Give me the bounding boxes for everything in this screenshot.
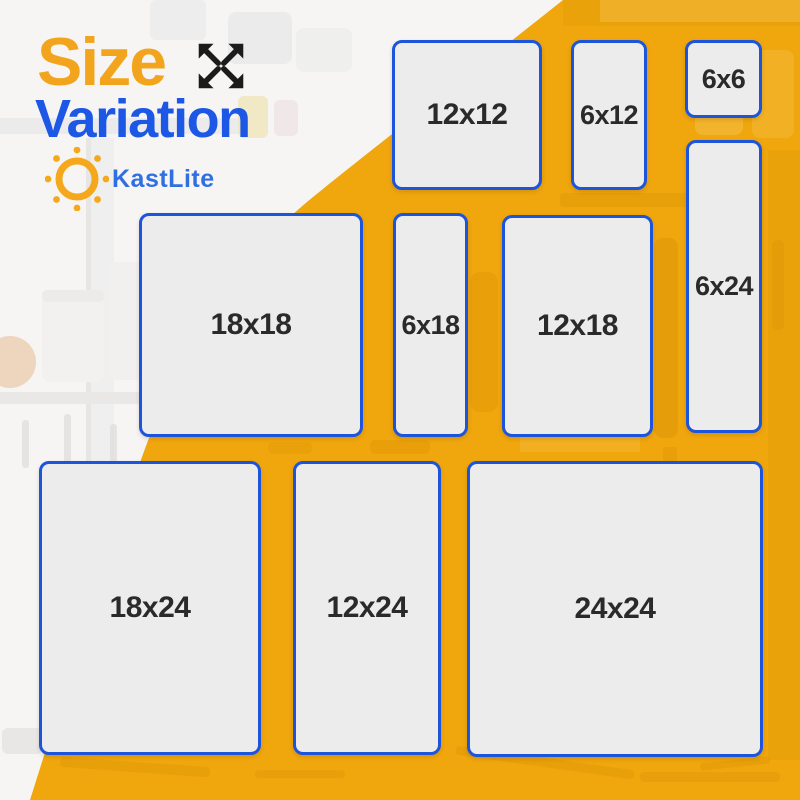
size-label: 6x6: [702, 66, 746, 93]
brand-logo-text: KastLite: [112, 165, 215, 194]
size-label: 6x18: [401, 312, 459, 339]
size-panel: 18x18: [139, 213, 363, 437]
size-panel: 18x24: [39, 461, 261, 755]
product-size-variation-graphic: Size Variation: [0, 0, 800, 800]
size-panel: 24x24: [467, 461, 763, 757]
size-label: 12x24: [327, 593, 408, 623]
size-panel: 12x12: [392, 40, 542, 190]
size-panel: 12x18: [502, 215, 653, 437]
size-panel: 6x6: [685, 40, 762, 118]
size-panel: 6x12: [571, 40, 647, 190]
size-panel: 6x18: [393, 213, 468, 437]
size-panel: 6x24: [686, 140, 762, 433]
size-label: 18x24: [110, 593, 191, 623]
size-label: 12x18: [537, 311, 618, 341]
sun-icon: [45, 147, 109, 211]
expand-arrows-icon: [192, 40, 250, 92]
size-panel: 12x24: [293, 461, 441, 755]
page-title-line1: Size: [37, 28, 165, 96]
size-label: 12x12: [427, 100, 508, 130]
size-label: 6x24: [695, 273, 753, 300]
page-title-line2: Variation: [35, 92, 250, 146]
size-label: 24x24: [575, 594, 656, 624]
size-label: 6x12: [580, 102, 638, 129]
size-label: 18x18: [211, 310, 292, 340]
